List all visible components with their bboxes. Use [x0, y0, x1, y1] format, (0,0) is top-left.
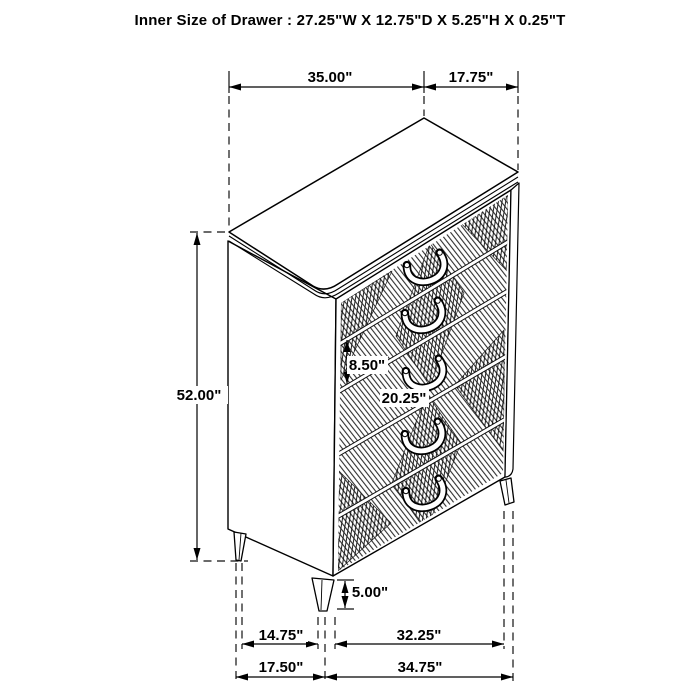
pattern-diamond-3 [389, 539, 458, 633]
chest-dimension-diagram: Inner Size of Drawer : 27.25"W X 12.75"D… [0, 0, 700, 700]
dim-drawer-height-label: 8.50" [349, 357, 385, 374]
dim-overall-height-label: 52.00" [177, 387, 222, 404]
dim-leg-height-label: 5.00" [352, 584, 388, 601]
dim-top-depth-label: 17.75" [449, 69, 494, 86]
dim-drawer-width-label: 20.25" [382, 390, 427, 407]
dim-base-width-label: 34.75" [398, 659, 443, 676]
front-leg [312, 578, 334, 611]
page-title: Inner Size of Drawer : 27.25"W X 12.75"D… [134, 12, 565, 29]
dimension-diagram-page: Inner Size of Drawer : 27.25"W X 12.75"D… [0, 0, 700, 700]
dim-leg-span-depth-label: 14.75" [259, 627, 304, 644]
dim-base-depth-label: 17.50" [259, 659, 304, 676]
chest-drawing [228, 118, 520, 633]
chest-left-side-panel [228, 241, 336, 576]
dim-top-width-label: 35.00" [308, 69, 353, 86]
right-leg [500, 478, 514, 505]
dim-leg-span-width-label: 32.25" [397, 627, 442, 644]
